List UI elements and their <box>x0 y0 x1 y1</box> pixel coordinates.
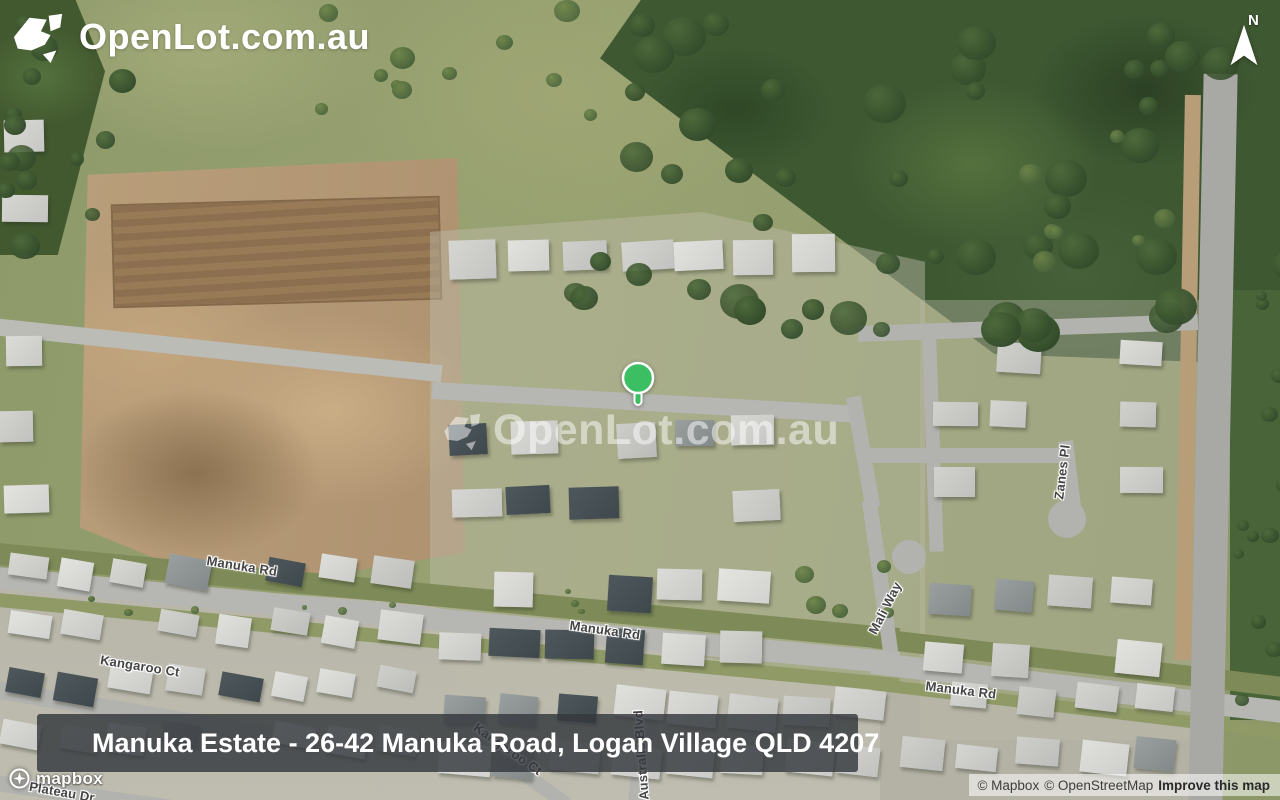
tree <box>1261 528 1278 544</box>
house-roof <box>732 240 772 275</box>
tree <box>956 239 996 275</box>
mapbox-logo-icon <box>8 767 31 790</box>
tree <box>1044 194 1071 219</box>
map-canvas[interactable]: Manuka RdManuka RdManuka RdKangaroo CtKa… <box>0 0 1280 800</box>
house-roof <box>1 195 47 223</box>
tree <box>1121 128 1159 163</box>
house-roof <box>448 239 497 280</box>
house-roof <box>989 400 1026 428</box>
tree <box>10 233 39 260</box>
tree <box>802 299 825 319</box>
house-roof <box>1015 736 1060 767</box>
house-roof <box>991 642 1030 677</box>
tree <box>4 115 26 135</box>
house-roof <box>321 615 360 649</box>
tree <box>957 26 996 61</box>
tree <box>625 83 645 101</box>
house-roof <box>657 569 703 601</box>
house-roof <box>494 572 534 608</box>
tree <box>1154 209 1175 228</box>
house-roof <box>318 553 357 583</box>
openlot-logo-icon <box>443 411 483 451</box>
house-roof <box>661 633 706 667</box>
tree <box>442 67 457 80</box>
house-roof <box>1110 576 1153 605</box>
house-roof <box>792 234 836 272</box>
house-roof <box>377 609 423 644</box>
tree <box>374 69 388 82</box>
tree <box>1261 407 1278 422</box>
house-roof <box>0 411 34 443</box>
tree <box>620 142 653 172</box>
tree <box>389 602 395 608</box>
graded-earth-pad <box>111 196 443 309</box>
tree <box>70 152 85 165</box>
house-roof <box>489 628 541 658</box>
house-roof <box>733 489 782 522</box>
house-roof <box>899 736 945 771</box>
tree <box>23 68 42 85</box>
house-roof <box>370 555 414 589</box>
house-roof <box>215 614 252 648</box>
house-roof <box>933 402 979 427</box>
tree <box>1139 97 1158 114</box>
cul-de-sac <box>1048 500 1086 538</box>
house-roof <box>1074 682 1119 713</box>
house-roof <box>1047 574 1093 608</box>
tree <box>966 82 985 99</box>
house-roof <box>508 240 549 272</box>
openlot-logo-icon <box>12 10 66 64</box>
house-roof <box>452 488 502 517</box>
house-roof <box>993 579 1033 613</box>
cul-de-sac <box>892 540 926 574</box>
road <box>868 448 1068 463</box>
tree <box>124 609 133 617</box>
tree <box>795 566 814 583</box>
house-roof <box>6 335 42 366</box>
watermark-text: OpenLot.com.au <box>493 406 839 455</box>
tree <box>590 252 611 271</box>
tree <box>661 164 683 184</box>
tree <box>1265 642 1280 658</box>
house-roof <box>1114 639 1162 677</box>
house-roof <box>717 568 771 604</box>
mapbox-attribution-link[interactable]: © Mapbox <box>977 778 1039 793</box>
openlot-logo-text: OpenLot.com.au <box>79 16 370 58</box>
house-roof <box>673 239 723 270</box>
tree <box>830 301 868 335</box>
house-roof <box>934 467 975 497</box>
tree <box>633 36 673 72</box>
map-attribution: © Mapbox © OpenStreetMap Improve this ma… <box>969 774 1280 796</box>
house-roof <box>720 630 763 663</box>
tree <box>1235 694 1249 706</box>
house-roof <box>1079 739 1129 776</box>
tree <box>873 322 890 337</box>
house-roof <box>1133 736 1176 772</box>
tree <box>88 596 95 602</box>
tree <box>775 168 796 187</box>
house-roof <box>506 485 551 515</box>
tree <box>1271 368 1280 383</box>
house-roof <box>1120 402 1157 428</box>
tree <box>1058 232 1099 269</box>
tree <box>191 606 199 613</box>
tree <box>761 79 785 101</box>
house-roof <box>1119 340 1162 367</box>
tree <box>1019 164 1042 185</box>
house-roof <box>1134 683 1174 712</box>
tree <box>570 286 597 311</box>
house-roof <box>607 575 653 613</box>
house-roof <box>928 582 972 616</box>
tree <box>390 47 414 69</box>
north-arrow-icon <box>1224 23 1264 69</box>
house-roof <box>1120 467 1163 493</box>
house-roof <box>923 642 965 674</box>
improve-this-map-link[interactable]: Improve this map <box>1158 778 1270 793</box>
house-roof <box>438 633 480 661</box>
house-roof <box>955 744 999 772</box>
tree <box>703 12 729 36</box>
tree <box>96 131 115 148</box>
tree <box>315 103 328 114</box>
tree <box>1155 288 1197 325</box>
openlot-logo: OpenLot.com.au <box>12 10 370 64</box>
property-caption-bar: Manuka Estate - 26-42 Manuka Road, Logan… <box>37 714 858 772</box>
tree <box>1247 531 1259 542</box>
tree <box>981 312 1020 347</box>
tree <box>1237 520 1249 531</box>
house-roof <box>3 484 49 514</box>
mapbox-logo-link[interactable]: mapbox <box>8 767 103 790</box>
tree <box>626 263 652 286</box>
property-caption-text: Manuka Estate - 26-42 Manuka Road, Logan… <box>92 728 879 758</box>
house-roof <box>568 486 618 519</box>
tree <box>1251 615 1266 628</box>
tree <box>687 279 711 301</box>
tree <box>781 319 803 339</box>
openstreetmap-attribution-link[interactable]: © OpenStreetMap <box>1044 778 1153 793</box>
tree <box>889 170 908 187</box>
tree <box>554 0 579 22</box>
mapbox-logo-text: mapbox <box>36 769 103 789</box>
house-roof <box>56 558 94 593</box>
tree <box>863 84 906 123</box>
property-marker-pin[interactable] <box>618 360 658 420</box>
north-compass: N <box>1224 14 1276 70</box>
tree <box>725 158 753 183</box>
tree <box>753 214 772 231</box>
tree <box>546 73 562 87</box>
house-roof <box>1017 686 1057 718</box>
tree <box>877 560 891 573</box>
tree <box>571 600 579 607</box>
